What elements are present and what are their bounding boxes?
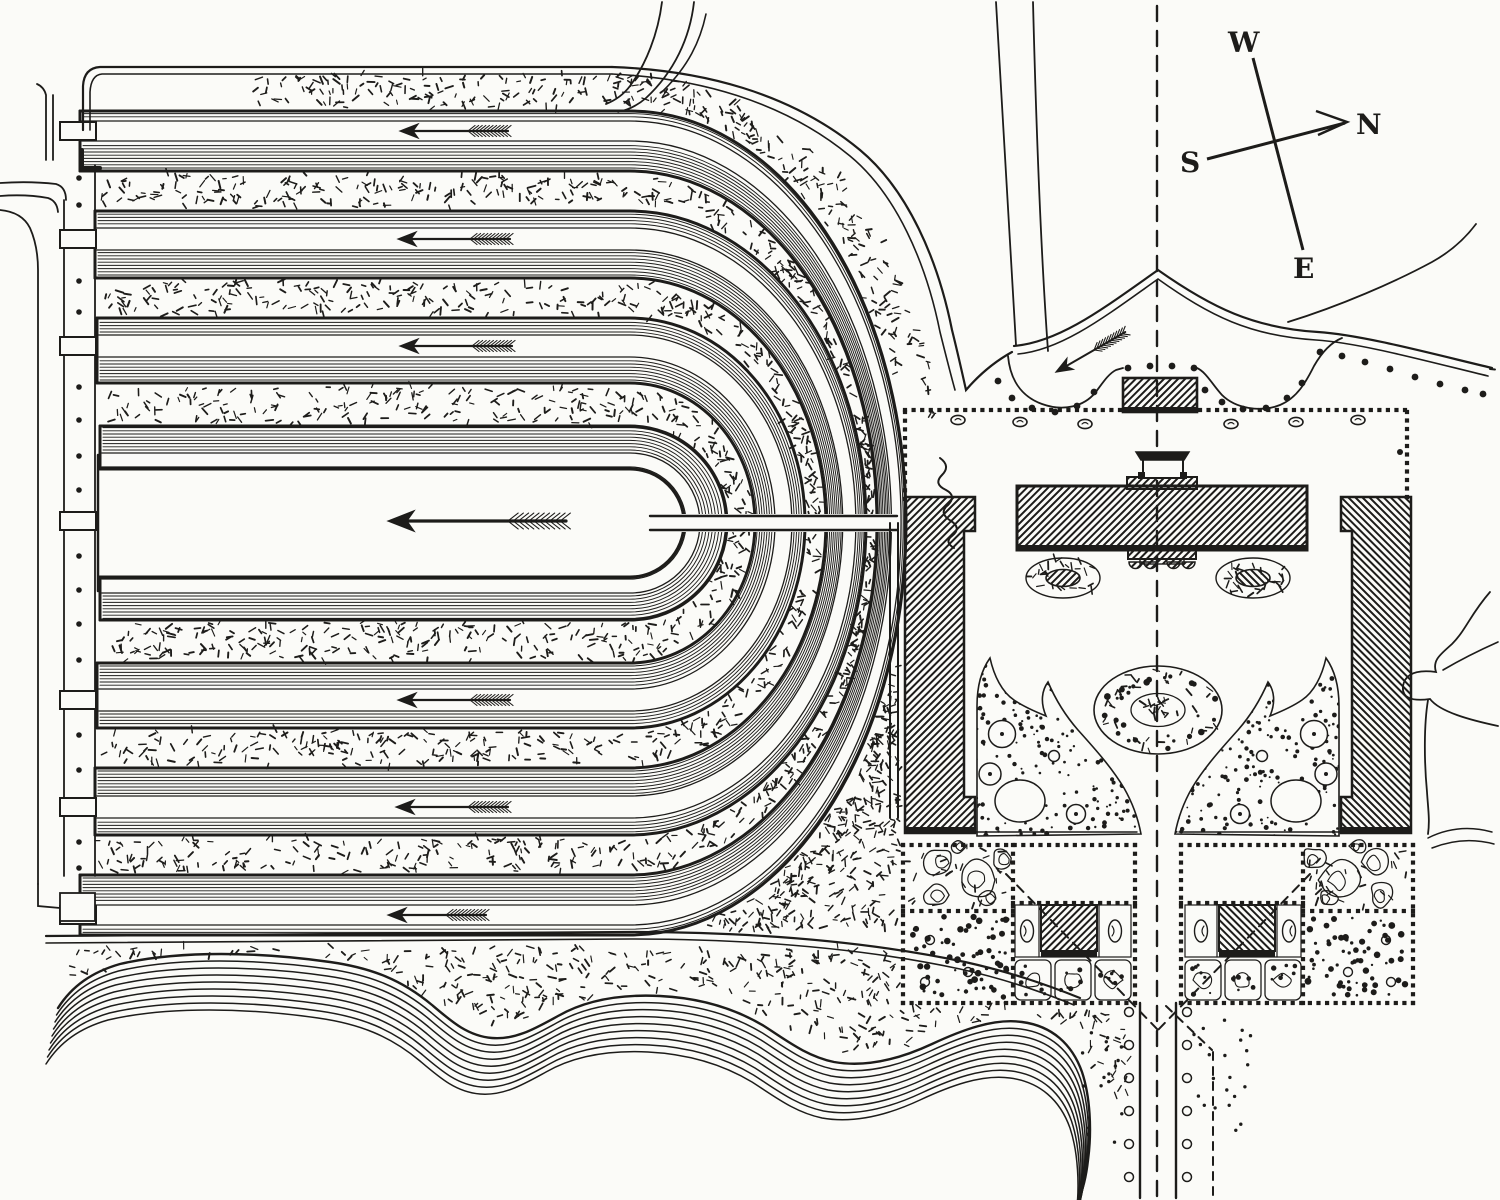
avenue-tree-icon (1183, 1173, 1192, 1182)
roadside-tree-dot (1437, 381, 1444, 388)
outbuilding (1219, 905, 1275, 951)
roadside-tree-dot (1125, 365, 1132, 372)
compass-rose: W N S E (1180, 26, 1382, 285)
roadside-tree-dot (1219, 399, 1226, 406)
avenue-tree-icon (1125, 1173, 1134, 1182)
bush-icon (951, 415, 965, 424)
roadside-tree-dot (1009, 395, 1016, 402)
river-contours (46, 954, 1090, 1200)
feathered-arrow-left-icon (398, 693, 513, 707)
branch-road (1288, 224, 1476, 322)
roadside-tree-dot (1091, 389, 1098, 396)
feathered-arrow-left-icon (388, 511, 570, 531)
avenue-tree-icon (1183, 1008, 1192, 1017)
garden-block (901, 832, 1160, 1032)
step-scallop (1182, 562, 1195, 569)
avenue (1081, 1003, 1252, 1198)
roadside-tree-dot (1462, 387, 1469, 394)
compass-label-north: N (1356, 108, 1382, 141)
roadside-tree-dot (1191, 365, 1198, 372)
tree-icon (1257, 751, 1268, 762)
bush-icon (1351, 415, 1365, 424)
estate-plan-engraving: W N S E (0, 0, 1500, 1200)
oval-flower-bed (1026, 554, 1100, 598)
serpentine-road (1014, 270, 1492, 368)
compass-label-east: E (1293, 252, 1314, 285)
mansion (1017, 452, 1307, 569)
compass-label-west: W (1227, 26, 1260, 59)
gate-lodge (1123, 378, 1197, 412)
feathered-arrow-left-icon (396, 800, 511, 814)
garden-block (1156, 832, 1415, 1032)
tree-icon (1049, 751, 1060, 762)
avenue-tree-icon (1125, 1041, 1134, 1050)
avenue-tree-icon (1125, 1140, 1134, 1149)
step-scallop (1129, 562, 1142, 569)
plan-canvas: W N S E (0, 0, 1500, 1200)
avenue-tree-icon (1183, 1074, 1192, 1083)
feathered-arrow-left-icon (400, 124, 511, 138)
avenue-tree-icon (1125, 1107, 1134, 1116)
stream-squiggle (1403, 592, 1498, 726)
roadside-tree-dot (1480, 391, 1487, 398)
compass-label-south: S (1180, 146, 1200, 179)
compass-axis-icon (1253, 58, 1303, 250)
roadside-tree-dot (1387, 366, 1394, 373)
roadside-tree-dot (1169, 363, 1176, 370)
avenue-tree-icon (1183, 1140, 1192, 1149)
oval-flower-bed (1216, 558, 1290, 598)
roadside-tree-dot (995, 378, 1002, 385)
roadside-tree-dot (1339, 353, 1346, 360)
compass-arrowhead-icon (1316, 111, 1347, 135)
roadside-tree-dot (1362, 359, 1369, 366)
roadside-tree-dot (1284, 395, 1291, 402)
outbuilding (1041, 905, 1097, 951)
step-scallop (1167, 562, 1180, 569)
feathered-arrow-left-icon (388, 908, 489, 922)
bush-icon (1289, 417, 1303, 426)
mansion-wing (905, 497, 975, 833)
feathered-arrow-left-icon (400, 339, 515, 353)
mansion-wing (1341, 497, 1411, 833)
roadside-tree-dot (1412, 374, 1419, 381)
bush-icon (1078, 419, 1092, 428)
step-scallop (1144, 562, 1157, 569)
roadside-tree-dot (1299, 380, 1306, 387)
roadside-tree-dot (1202, 387, 1209, 394)
portico (1143, 458, 1183, 478)
avenue-tree-icon (1183, 1107, 1192, 1116)
roadside-tree-dot (1147, 363, 1154, 370)
stipple-ground-texture (70, 69, 1131, 1099)
feathered-arrow-left-icon (398, 232, 513, 246)
avenue-tree-icon (1183, 1041, 1192, 1050)
avenue-tree-icon (1125, 1008, 1134, 1017)
bush-icon (1224, 419, 1238, 428)
roadside-tree-dot (1317, 349, 1324, 356)
bush-icon (1013, 417, 1027, 426)
